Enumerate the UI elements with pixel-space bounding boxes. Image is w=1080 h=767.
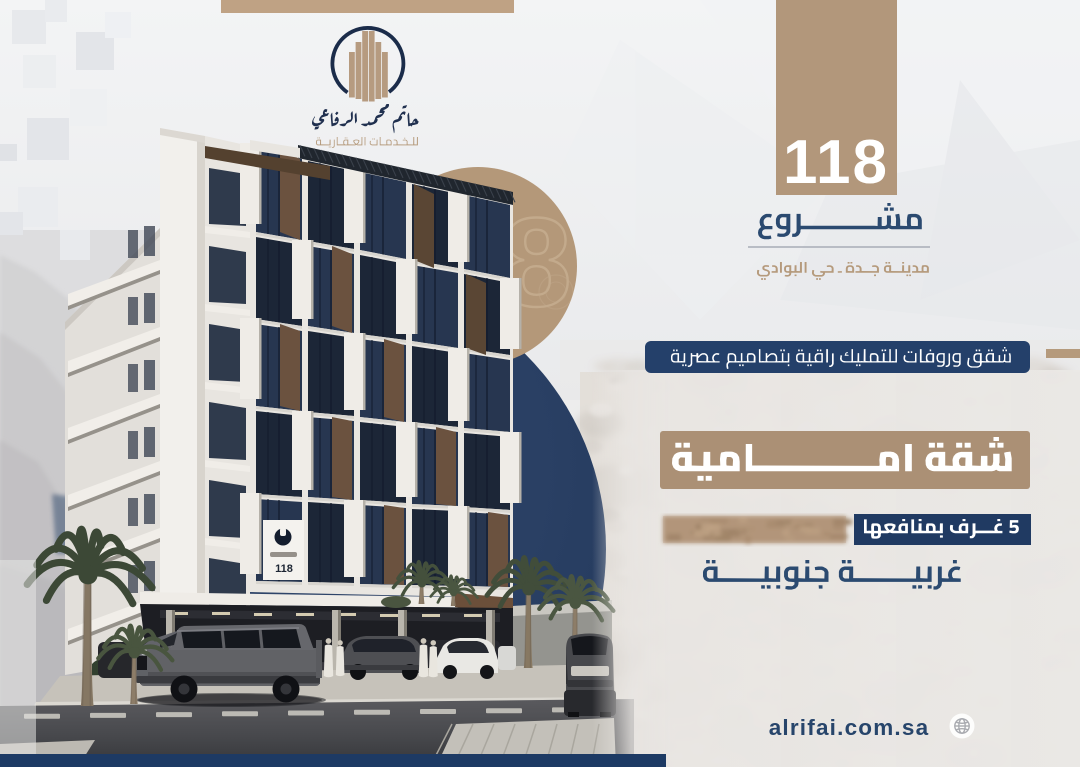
svg-text:alrifai.com.sa: alrifai.com.sa [769, 715, 930, 740]
svg-text:118: 118 [275, 563, 293, 575]
svg-text:118: 118 [783, 128, 889, 197]
